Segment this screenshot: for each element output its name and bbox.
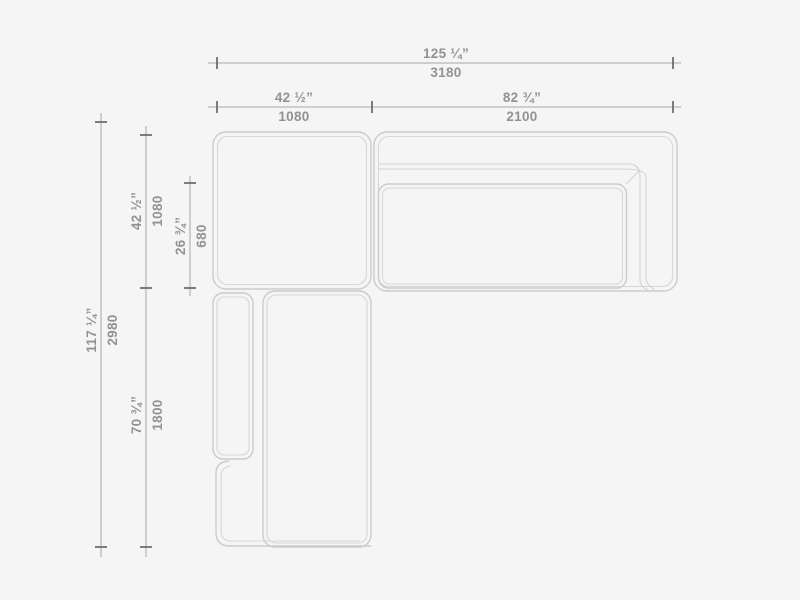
dim-label-top-depth-inches: 42 ½” <box>129 192 144 230</box>
chaise-shell-outline-outer <box>216 461 371 546</box>
dim-label-seat-depth-mm: 680 <box>194 224 209 247</box>
chaise-seat-outline-inner <box>267 295 367 543</box>
ottoman-module <box>213 132 371 289</box>
dim-label-right-width-inches: 82 ¾” <box>503 90 541 105</box>
dim-overall-depth: 117 ¼” 2980 <box>84 113 120 557</box>
chaise-back-cushion-inner <box>217 297 249 455</box>
dim-label-chaise-length-mm: 1800 <box>150 399 165 430</box>
dim-label-overall-depth-mm: 2980 <box>105 314 120 345</box>
ottoman-outline-outer <box>213 132 371 289</box>
backrest-inner-edge <box>379 164 648 290</box>
seat-cushion-outline-inner <box>383 188 623 284</box>
seat-cushion-outline-outer <box>379 184 627 288</box>
ottoman-outline-inner <box>218 137 367 285</box>
sofa-right-outline-outer <box>374 132 677 291</box>
dim-label-overall-width-mm: 3180 <box>430 65 461 80</box>
dim-label-left-width-inches: 42 ½” <box>275 90 313 105</box>
dim-module-widths: 42 ½” 1080 82 ¾” 2100 <box>208 90 681 124</box>
chaise-back-cushion-outer <box>213 293 253 459</box>
dim-depth-segments: 42 ½” 1080 70 ¾” 1800 <box>129 126 165 557</box>
dim-label-overall-width-inches: 125 ¼” <box>423 46 469 61</box>
dim-label-right-width-mm: 2100 <box>506 109 537 124</box>
corner-miter-seam <box>626 171 639 184</box>
dim-label-seat-depth-inches: 26 ¾” <box>173 217 188 255</box>
dim-label-overall-depth-inches: 117 ¼” <box>84 307 99 352</box>
sofa-right-module <box>374 132 677 291</box>
chaise-seat-outline-outer <box>263 291 371 547</box>
chaise-module <box>213 291 371 547</box>
dim-label-top-depth-mm: 1080 <box>150 195 165 226</box>
backrest-inner-edge-offset <box>379 169 654 289</box>
dim-seat-depth: 26 ¾” 680 <box>173 176 209 296</box>
sofa-right-outline-inner <box>379 137 673 287</box>
dimension-diagram-page: 125 ¼” 3180 42 ½” 1080 82 ¾” 2100 117 ¼” <box>0 0 800 600</box>
dim-label-chaise-length-inches: 70 ¾” <box>129 396 144 434</box>
sofa-top-view <box>213 132 677 547</box>
dim-overall-width: 125 ¼” 3180 <box>208 46 681 80</box>
sofa-dimension-diagram: 125 ¼” 3180 42 ½” 1080 82 ¾” 2100 117 ¼” <box>0 0 800 600</box>
dim-label-left-width-mm: 1080 <box>278 109 309 124</box>
chaise-shell-outline-inner <box>221 466 360 541</box>
dimension-annotations: 125 ¼” 3180 42 ½” 1080 82 ¾” 2100 117 ¼” <box>84 46 681 557</box>
